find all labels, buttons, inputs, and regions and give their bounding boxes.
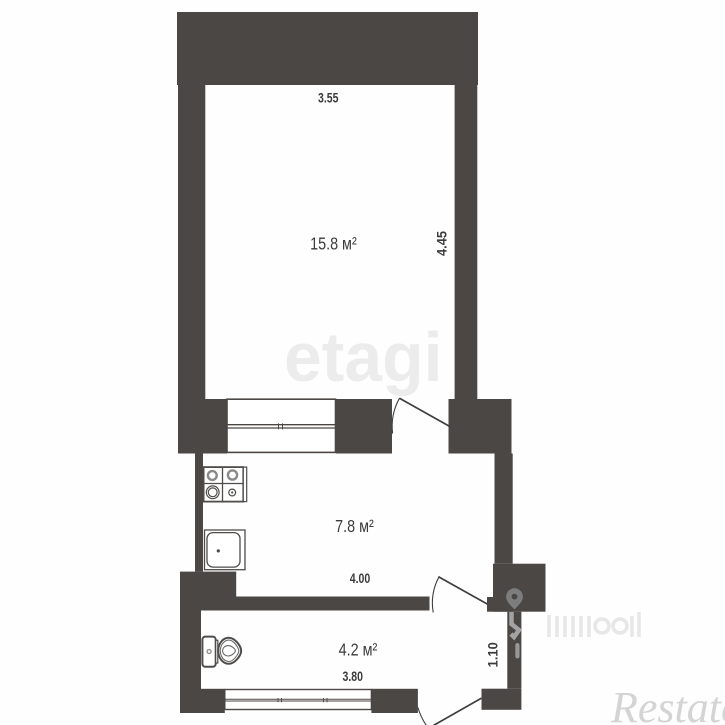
svg-text:4.45: 4.45 — [434, 230, 450, 256]
svg-text:3.80: 3.80 — [342, 669, 363, 685]
svg-text:4.00: 4.00 — [350, 570, 371, 586]
svg-text:etagi: etagi — [284, 318, 442, 396]
svg-text:3.55: 3.55 — [318, 90, 339, 106]
svg-text:15.8 м²: 15.8 м² — [310, 234, 357, 254]
svg-text:4.2 м²: 4.2 м² — [339, 640, 378, 660]
svg-text:Restate: Restate — [610, 683, 725, 725]
svg-text:1.10: 1.10 — [485, 642, 501, 667]
svg-text:7.8 м²: 7.8 м² — [335, 517, 374, 537]
